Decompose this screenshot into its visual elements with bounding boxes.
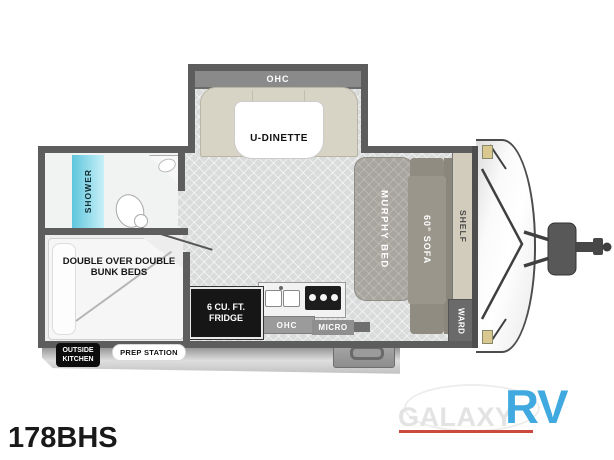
front-wall — [472, 146, 478, 348]
shower-stall: SHOWER — [72, 155, 104, 228]
microwave: MICRO — [312, 320, 354, 335]
entry-step-handle — [350, 346, 384, 360]
bathroom-wall — [38, 228, 188, 235]
dinette-table: U-DINETTE — [234, 101, 324, 159]
prep-station-badge: PREP STATION — [112, 344, 186, 361]
wardrobe-label: WARD — [457, 308, 466, 334]
bunkroom-wall — [183, 252, 190, 348]
microwave-handle — [354, 322, 370, 332]
logo-rv-text: RV — [505, 383, 567, 430]
fridge: 6 CU. FT. FRIDGE — [189, 287, 263, 339]
wall — [38, 146, 195, 153]
murphy-bed-label: MURPHY BED — [379, 190, 390, 269]
wall — [38, 146, 45, 348]
sofa-armrest — [410, 300, 444, 334]
sofa: 60" SOFA — [408, 176, 446, 304]
outside-kitchen-badge: OUTSIDE KITCHEN — [56, 343, 100, 367]
shower-label: SHOWER — [83, 169, 93, 213]
logo-underline — [399, 430, 533, 433]
wall — [38, 341, 478, 348]
hitch-coupler-icon — [593, 238, 603, 255]
burner-icon — [320, 294, 327, 301]
burner-icon — [309, 294, 316, 301]
wardrobe: WARD — [448, 299, 474, 343]
toilet-tank-icon — [134, 214, 148, 228]
hitch-tongue — [520, 218, 614, 280]
kitchen-sink-icon — [283, 290, 300, 307]
slideout-wall — [188, 64, 368, 71]
faucet-icon — [279, 286, 283, 290]
floorplan-canvas: SHOWER DOUBLE OVER DOUBLE BUNK BEDS OHC … — [0, 0, 614, 460]
bathroom-wall — [178, 153, 185, 191]
marker-light-icon — [482, 330, 493, 344]
propane-tank-icon — [548, 223, 576, 275]
marker-light-icon — [482, 145, 493, 159]
shelf: SHELF — [452, 153, 473, 299]
murphy-bed: MURPHY BED — [354, 157, 414, 301]
kitchen-ohc-cabinet: OHC — [259, 316, 315, 334]
slideout-wall — [361, 64, 368, 153]
bunk-beds-label: DOUBLE OVER DOUBLE BUNK BEDS — [60, 256, 178, 279]
model-number: 178BHS — [8, 422, 118, 455]
shelf-label: SHELF — [458, 210, 468, 243]
dinette-label: U-DINETTE — [250, 133, 308, 144]
kitchen-sink-icon — [265, 290, 282, 307]
burner-icon — [331, 294, 338, 301]
wall — [361, 146, 478, 153]
logo-galaxy-text: GALAXY — [398, 402, 514, 433]
slideout-wall — [188, 64, 195, 153]
sofa-label: 60" SOFA — [422, 215, 432, 264]
